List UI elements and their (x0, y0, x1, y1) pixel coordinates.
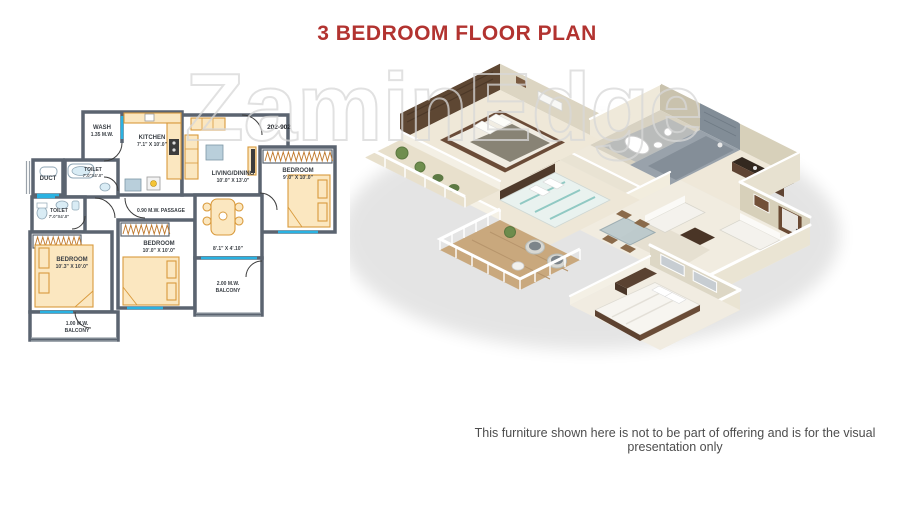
bedroom-left-label: BEDROOM (56, 257, 87, 263)
balcony-large-line2: BALCONY (216, 288, 241, 294)
floor-plan-3d (350, 50, 910, 395)
duct-label: DUCT (40, 176, 57, 182)
side-table (512, 262, 524, 270)
toilet1-dim: 7'.0"X4'.0" (83, 173, 103, 178)
unit-number: 202-902 (267, 124, 291, 131)
living-dim: 10'.0" X 13'.0" (217, 178, 250, 184)
plant (415, 162, 425, 172)
bedroom-right-label: BEDROOM (282, 168, 313, 174)
balcony-large-line1: 2.00 M.W. (217, 281, 240, 287)
wash-label: WASH (93, 125, 111, 131)
bedroom-mid-label: BEDROOM (143, 241, 174, 247)
balcony-small-line2: BALCONY (65, 328, 90, 334)
dining-dim: 8'.1" X 4'.10" (213, 246, 244, 252)
kitchen-label: KITCHEN (139, 135, 166, 141)
toilet2-dim: 7'.0"X4'.0" (49, 214, 69, 219)
floor-plan-page: { "page": { "title": "3 BEDROOM FLOOR PL… (0, 0, 914, 525)
plant (396, 147, 408, 159)
balcony-small-line1: 1.00 M.W. (66, 321, 89, 327)
kitchen-dim: 7'.1" X 10'.0" (137, 142, 168, 148)
bedroom-left-dim: 10'.3" X 10'.0" (56, 264, 89, 270)
disclaimer-text: This furniture shown here is not to be p… (440, 426, 910, 454)
page-title: 3 BEDROOM FLOOR PLAN (0, 22, 914, 46)
plant (505, 227, 516, 238)
living-label: LIVING/DINING (212, 171, 255, 177)
passage-label: 0.90 M.W. PASSAGE (137, 208, 186, 214)
bedroom-right-dim: 9'.0" X 10'.0" (283, 175, 314, 181)
bedroom-mid-dim: 10'.0" X 10'.0" (143, 248, 176, 254)
floor-plan-2d: WASH 1.35 M.W. KITCHEN 7'.1" X 10'.0" DU… (15, 95, 355, 355)
wash-dim: 1.35 M.W. (91, 132, 114, 138)
